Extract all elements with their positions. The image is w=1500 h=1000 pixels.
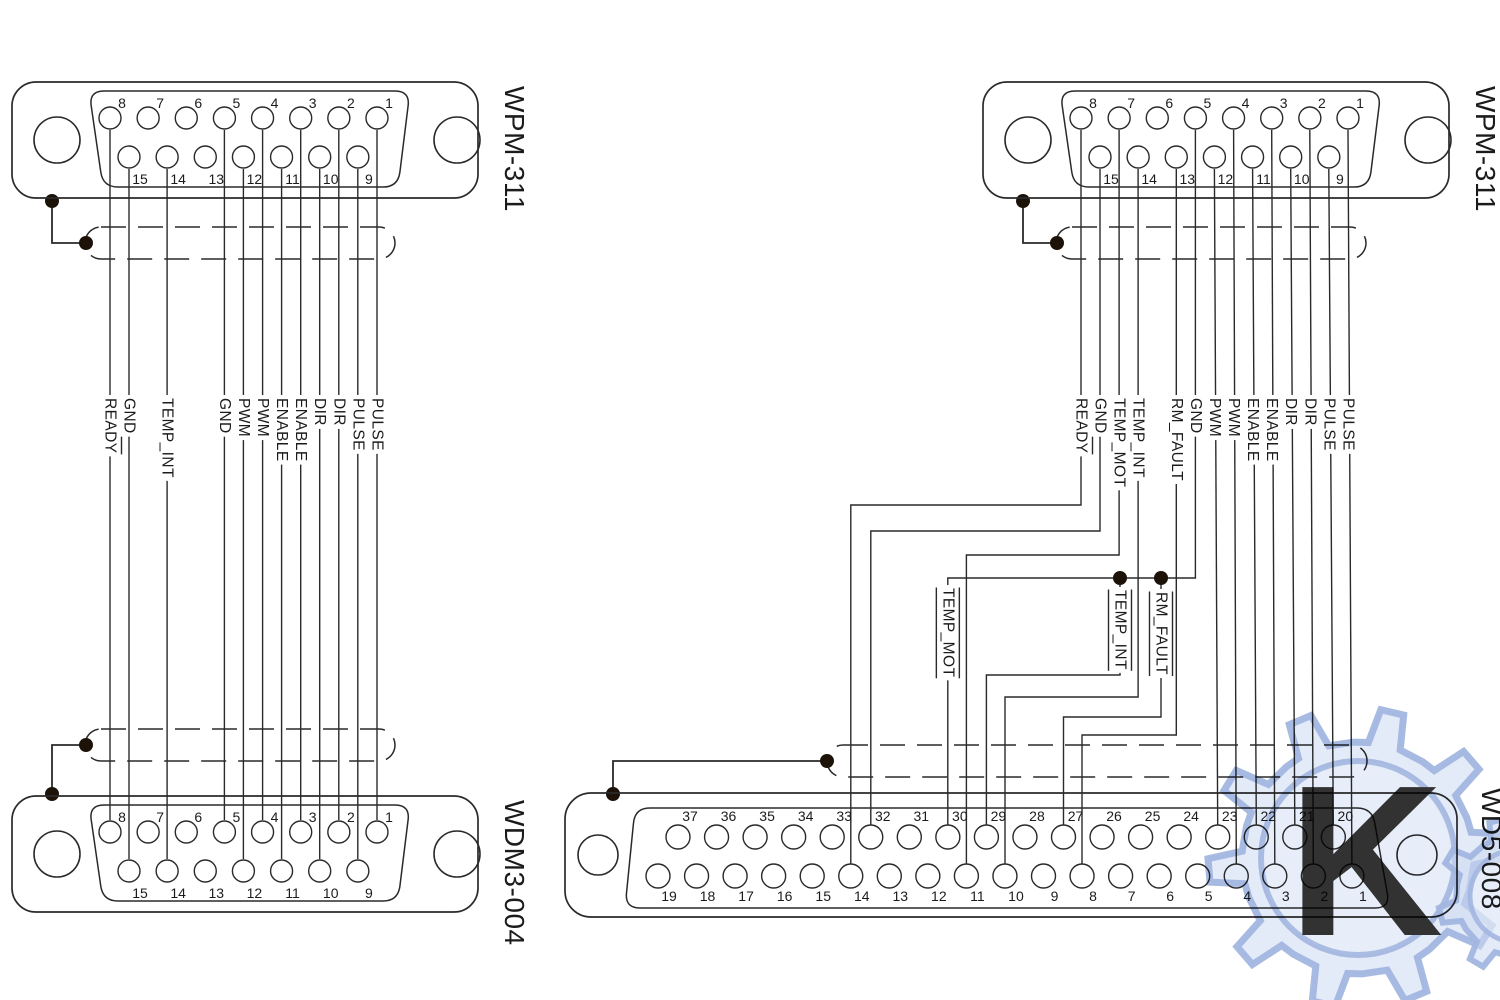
signal-name: TEMP_MOT (939, 588, 956, 677)
pin-number: 1 (385, 95, 393, 111)
mounting-hole (578, 835, 618, 875)
signal-name: RM_FAULT (1168, 398, 1185, 481)
wire (986, 578, 1120, 825)
pin-number: 26 (1106, 808, 1122, 824)
signal-name: TEMP_MOT (1111, 398, 1128, 487)
connector-label: WPM-311 (1470, 86, 1500, 212)
pin-number: 15 (132, 171, 148, 187)
pin-number: 7 (156, 809, 164, 825)
pin-number: 18 (700, 888, 716, 904)
pin-number: 28 (1029, 808, 1045, 824)
pin-hole (1089, 146, 1111, 168)
signal-name: READY (1073, 398, 1090, 453)
pin-number: 7 (1127, 95, 1135, 111)
pin-number: 29 (991, 808, 1007, 824)
pin-number: 14 (1141, 171, 1157, 187)
mounting-hole (1005, 117, 1051, 163)
wire-label: PWM (234, 395, 255, 440)
pin-number: 9 (1051, 888, 1059, 904)
mounting-hole (34, 831, 80, 877)
pin-number: 14 (170, 171, 186, 187)
watermark: K (1208, 710, 1500, 1000)
wire (1272, 130, 1275, 864)
mounting-hole (34, 117, 80, 163)
signal-name: PULSE (349, 398, 366, 451)
pin-number: 33 (836, 808, 852, 824)
wire-label: TEMP_INT (1129, 395, 1148, 481)
wire (871, 169, 1100, 825)
wire-label: PWM (1224, 395, 1243, 440)
pin-hole (1052, 825, 1076, 849)
pin-hole (993, 864, 1017, 888)
pin-number: 25 (1145, 808, 1161, 824)
pin-hole (1280, 146, 1302, 168)
pin-number: 8 (1089, 95, 1097, 111)
pin-number: 5 (233, 809, 241, 825)
pin-number: 4 (1242, 95, 1250, 111)
junction-dot (606, 787, 620, 801)
junction-dot (79, 236, 93, 250)
pin-number: 4 (271, 95, 279, 111)
signal-name: PWM (1206, 398, 1223, 437)
pin-number: 6 (194, 95, 202, 111)
pin-number: 2 (347, 95, 355, 111)
cable-shield (85, 227, 395, 259)
wire-label: GND (215, 395, 234, 437)
pin-number: 30 (952, 808, 968, 824)
pin-hole (646, 864, 670, 888)
wire-label: ENABLE (272, 395, 293, 465)
wire-label: GND (1186, 395, 1205, 437)
pin-number: 12 (931, 888, 947, 904)
connector-label: WPM-311 (499, 86, 530, 212)
pin-hole (347, 146, 369, 168)
pin-number: 13 (208, 885, 224, 901)
pin-hole (1206, 825, 1230, 849)
pin-hole (685, 864, 709, 888)
pin-number: 16 (777, 888, 793, 904)
pin-hole (1147, 864, 1171, 888)
pin-hole (877, 864, 901, 888)
pin-number: 9 (365, 171, 373, 187)
signal-name: GND (1187, 398, 1204, 434)
pin-hole (271, 146, 293, 168)
watermark-monogram: K (1288, 740, 1443, 981)
junction-dot (1154, 571, 1168, 585)
junction-dot (45, 194, 59, 208)
signal-name: DIR (1282, 398, 1299, 426)
pin-hole (936, 825, 960, 849)
pin-hole (156, 146, 178, 168)
pin-hole (743, 825, 767, 849)
cable-shield (1056, 227, 1366, 259)
wire-label: DIR (310, 395, 331, 429)
diagram-canvas: 8765432115141312111098765432115141312111… (0, 0, 1500, 1000)
wire-label: PULSE (348, 395, 369, 454)
signal-name: ENABLE (1263, 398, 1280, 462)
pin-number: 5 (1205, 888, 1213, 904)
junction-dot (79, 738, 93, 752)
wire-label: TEMP_INT (158, 395, 177, 481)
shield-ground-line (613, 761, 827, 794)
signal-name: PULSE (1320, 398, 1337, 451)
pin-number: 8 (118, 809, 126, 825)
pin-number: 1 (385, 809, 393, 825)
pin-number: 10 (323, 885, 339, 901)
wire-label: RM_FAULT (1150, 589, 1173, 678)
pin-number: 9 (1336, 171, 1344, 187)
pin-number: 11 (285, 171, 300, 187)
shield-ground-line (52, 745, 86, 794)
wire (1253, 169, 1257, 825)
pin-hole (309, 860, 331, 882)
wire-label: TEMP_INT (1109, 587, 1132, 673)
signal-name: ENABLE (1244, 398, 1261, 462)
junction-dot (1016, 194, 1030, 208)
pin-number: 11 (970, 888, 985, 904)
wire-label: READY (1072, 395, 1093, 456)
pin-number: 15 (815, 888, 831, 904)
junction-dot (1113, 571, 1127, 585)
pin-number: 15 (132, 885, 148, 901)
pin-number: 7 (1128, 888, 1136, 904)
pin-hole (1090, 825, 1114, 849)
pin-hole (954, 864, 978, 888)
connector-label: WDM3-004 (499, 800, 530, 946)
pin-hole (232, 860, 254, 882)
signal-name: DIR (1301, 398, 1318, 426)
wire-label: PULSE (1319, 395, 1340, 454)
pin-hole (839, 864, 863, 888)
wiring-diagram-page: 8765432115141312111098765432115141312111… (0, 0, 1500, 1000)
pin-hole (1127, 146, 1149, 168)
pin-hole (1318, 146, 1340, 168)
pin-number: 9 (365, 885, 373, 901)
pin-number: 14 (170, 885, 186, 901)
wire-label: PWM (1205, 395, 1226, 440)
signal-name: PWM (1225, 398, 1242, 437)
pin-number: 5 (1204, 95, 1212, 111)
pin-hole (897, 825, 921, 849)
signal-name: PULSE (368, 398, 385, 451)
pin-hole (271, 860, 293, 882)
pin-number: 4 (271, 809, 279, 825)
wire-label: ENABLE (291, 395, 310, 465)
pin-number: 13 (208, 171, 224, 187)
layer-wires (45, 130, 1352, 864)
signal-name: TEMP_INT (1112, 590, 1129, 670)
pin-number: 32 (875, 808, 891, 824)
wire-label: ENABLE (1262, 395, 1281, 465)
cable-shield (85, 729, 395, 761)
wire-label: ENABLE (1243, 395, 1264, 465)
pin-number: 6 (194, 809, 202, 825)
pin-number: 5 (233, 95, 241, 111)
pin-number: 13 (1179, 171, 1195, 187)
signal-name: PULSE (1339, 398, 1356, 451)
pin-hole (118, 860, 140, 882)
pin-number: 27 (1068, 808, 1084, 824)
wire-label: RM_FAULT (1167, 395, 1186, 484)
signal-name: PWM (254, 398, 271, 437)
signal-name: GND (216, 398, 233, 434)
shield-ground-line (52, 201, 86, 243)
mounting-hole (434, 117, 480, 163)
pin-number: 17 (738, 888, 754, 904)
mounting-hole (434, 831, 480, 877)
wire (1005, 169, 1138, 864)
pin-number: 8 (1089, 888, 1097, 904)
signal-name: TEMP_INT (1130, 398, 1147, 478)
wire (966, 130, 1119, 864)
wire (1329, 169, 1334, 825)
pin-number: 11 (285, 885, 300, 901)
junction-dot (45, 787, 59, 801)
pin-number: 10 (323, 171, 339, 187)
pin-hole (666, 825, 690, 849)
wire (1214, 169, 1217, 825)
pin-hole (762, 864, 786, 888)
pin-number: 3 (1280, 95, 1288, 111)
pin-hole (974, 825, 998, 849)
mounting-hole (1405, 117, 1451, 163)
pin-number: 12 (1218, 171, 1234, 187)
wire-label: TEMP_MOT (1110, 395, 1129, 490)
pin-number: 34 (798, 808, 814, 824)
wire-label: READY (101, 395, 122, 456)
pin-number: 3 (309, 809, 317, 825)
wire-label: DIR (1281, 395, 1302, 429)
pin-number: 1 (1356, 95, 1364, 111)
pin-hole (1070, 864, 1094, 888)
wire-label: PWM (253, 395, 272, 440)
pin-number: 8 (118, 95, 126, 111)
pin-hole (1013, 825, 1037, 849)
signal-name: DIR (330, 398, 347, 426)
wire-label: GND (1091, 395, 1110, 437)
signal-name: GND (121, 398, 138, 434)
pin-hole (1129, 825, 1153, 849)
signal-name: ENABLE (292, 398, 309, 462)
pin-hole (1242, 146, 1264, 168)
pin-hole (309, 146, 331, 168)
pin-number: 10 (1294, 171, 1310, 187)
pin-number: 6 (1165, 95, 1173, 111)
pin-hole (118, 146, 140, 168)
pin-number: 13 (893, 888, 909, 904)
pin-number: 37 (682, 808, 698, 824)
wire-label: TEMP_MOT (936, 585, 959, 680)
pin-hole (705, 825, 729, 849)
pin-number: 12 (247, 885, 263, 901)
signal-name: TEMP_INT (159, 398, 176, 478)
pin-hole (1032, 864, 1056, 888)
pin-number: 15 (1103, 171, 1119, 187)
pin-number: 3 (309, 95, 317, 111)
signal-name: PWM (235, 398, 252, 437)
pin-hole (232, 146, 254, 168)
junction-dot (820, 754, 834, 768)
junction-dot (1050, 236, 1064, 250)
layer-cables (85, 227, 1367, 777)
pin-number: 12 (247, 171, 263, 187)
pin-hole (1109, 864, 1133, 888)
pin-number: 2 (1318, 95, 1326, 111)
signal-name: ENABLE (273, 398, 290, 462)
shield-ground-line (1023, 201, 1057, 243)
pin-number: 10 (1008, 888, 1024, 904)
pin-number: 2 (347, 809, 355, 825)
signal-name: RM_FAULT (1153, 592, 1170, 675)
wire (1234, 130, 1237, 864)
pin-number: 31 (914, 808, 930, 824)
pin-number: 35 (759, 808, 775, 824)
pin-number: 6 (1166, 888, 1174, 904)
wire-label: PULSE (367, 395, 386, 454)
pin-number: 14 (854, 888, 870, 904)
pin-hole (820, 825, 844, 849)
pin-hole (1167, 825, 1191, 849)
pin-number: 11 (1256, 171, 1271, 187)
signal-name: READY (102, 398, 119, 453)
pin-number: 19 (661, 888, 677, 904)
pin-hole (782, 825, 806, 849)
pin-hole (194, 146, 216, 168)
pin-hole (800, 864, 824, 888)
pin-hole (916, 864, 940, 888)
pin-hole (723, 864, 747, 888)
pin-hole (194, 860, 216, 882)
pin-hole (156, 860, 178, 882)
pin-number: 23 (1222, 808, 1238, 824)
wire (1082, 169, 1176, 864)
wire-label: GND (120, 395, 139, 437)
pin-number: 24 (1183, 808, 1199, 824)
wire-label: DIR (329, 395, 348, 429)
signal-name: GND (1092, 398, 1109, 434)
pin-hole (1165, 146, 1187, 168)
pin-hole (1203, 146, 1225, 168)
wire (948, 130, 1196, 825)
pin-hole (347, 860, 369, 882)
pin-number: 36 (721, 808, 737, 824)
wire-label: DIR (1300, 395, 1319, 429)
pin-number: 7 (156, 95, 164, 111)
wire-label: PULSE (1338, 395, 1357, 454)
signal-name: DIR (311, 398, 328, 426)
pin-hole (859, 825, 883, 849)
